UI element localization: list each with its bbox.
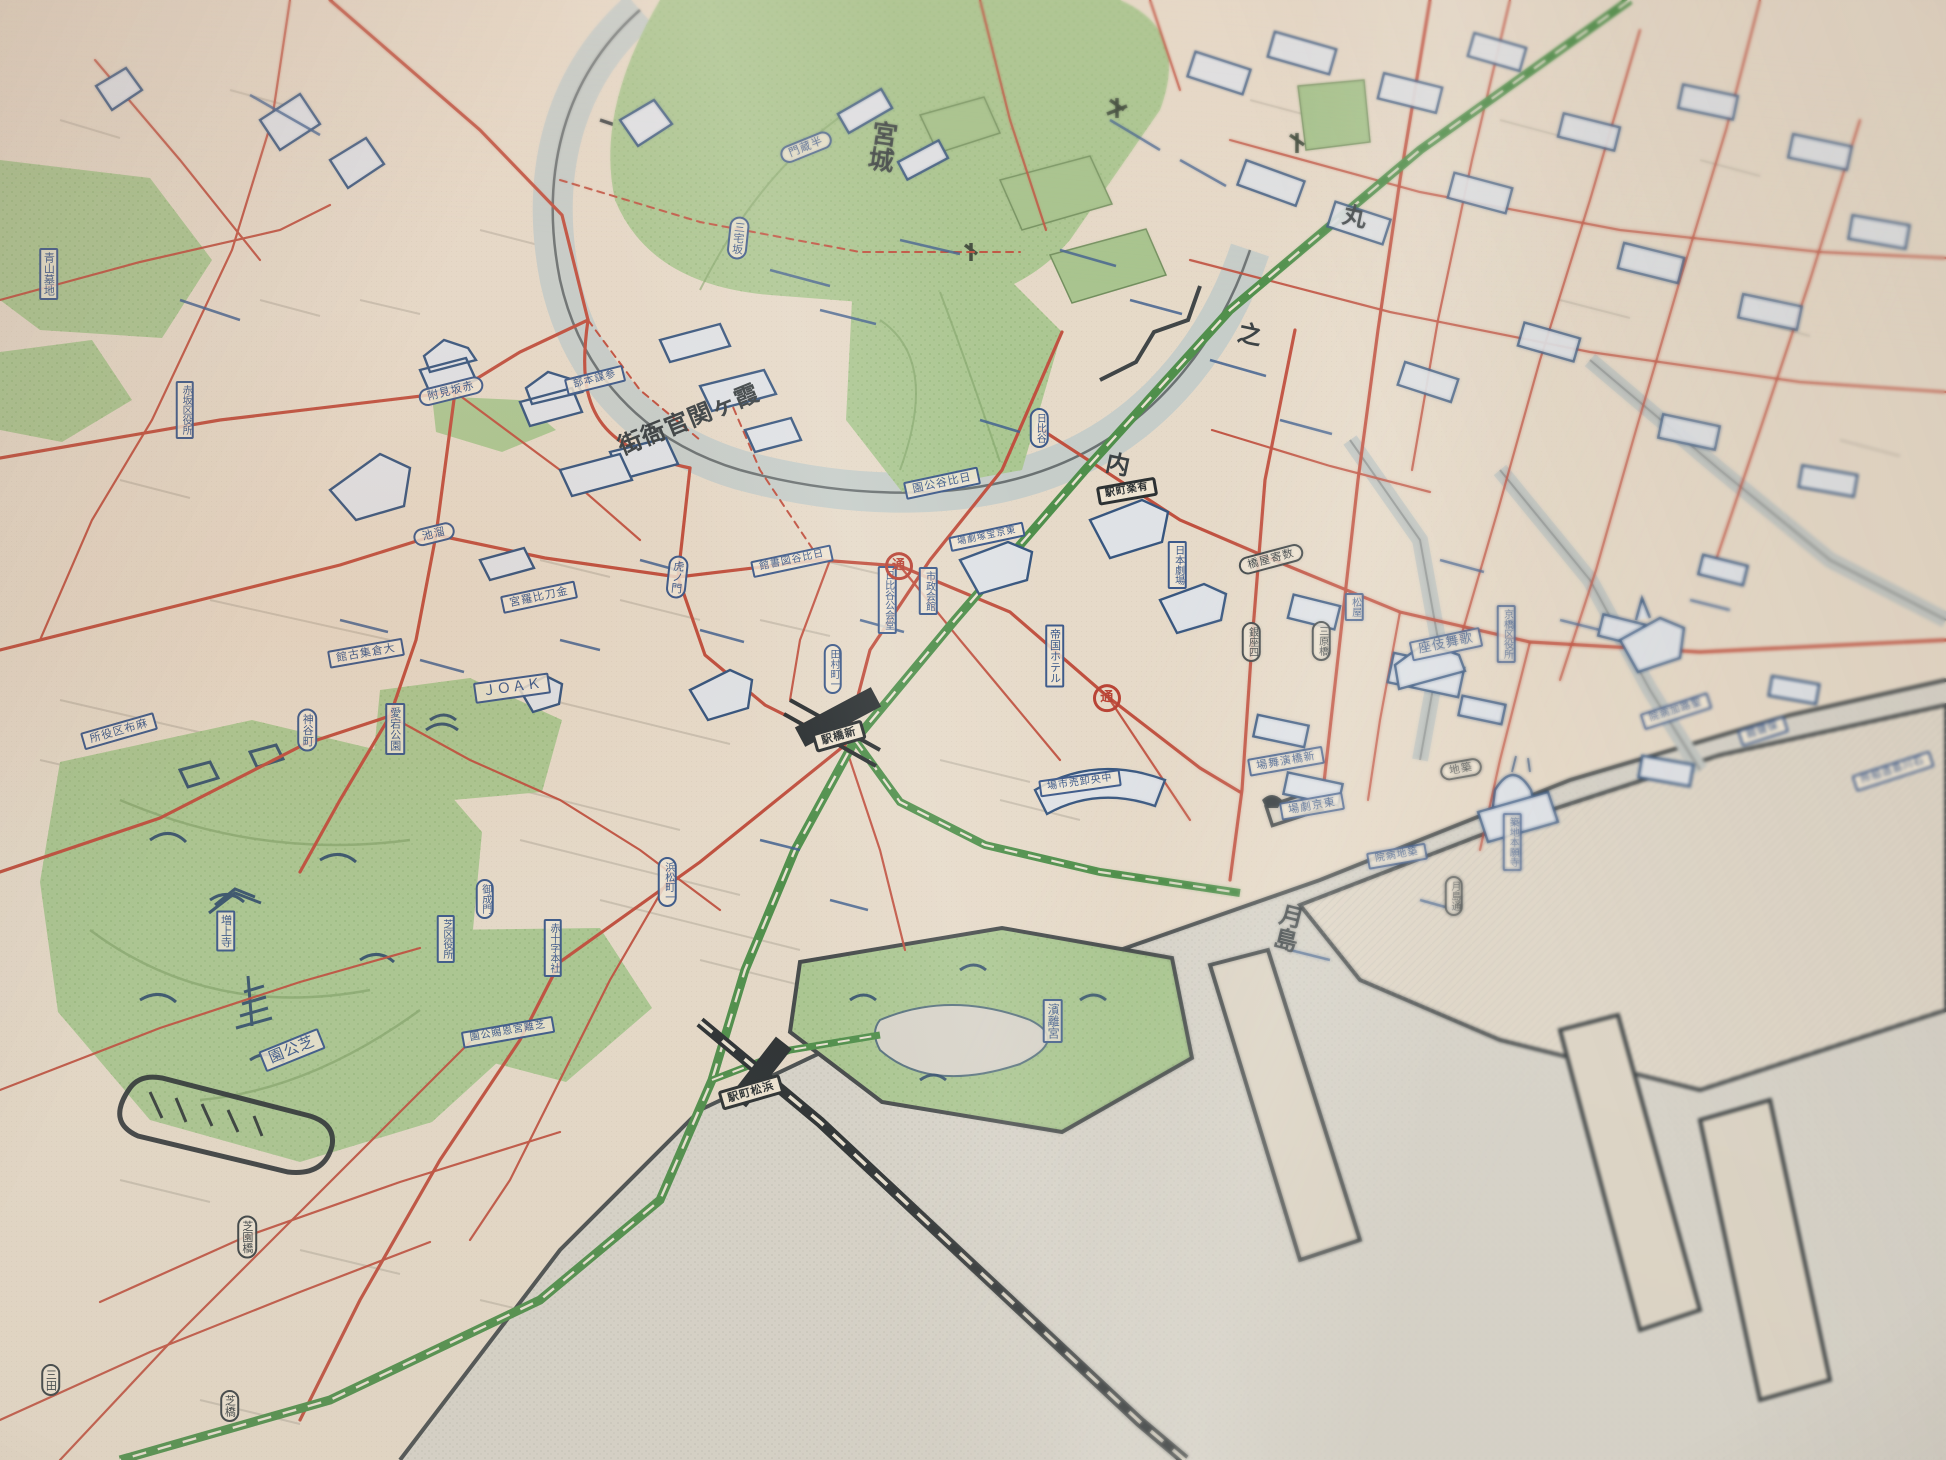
district-no: 之 [1233, 319, 1263, 348]
label-sekijuji-honsha: 赤十字本社 [543, 919, 562, 977]
mark-dori-1: 通 [885, 553, 913, 581]
district-uchi: 内 [1100, 448, 1130, 477]
label-nihon-gekijo: 日本劇場 [1168, 541, 1187, 589]
label-kyobashi-kuyakusho: 京橋区役所 [1497, 605, 1516, 663]
label-shiba-kuyakusho: 芝区役所 [436, 915, 455, 963]
label-shibabashi: 芝橋 [220, 1390, 240, 1422]
label-tsukishima-dori: 月島通 [1444, 876, 1463, 916]
label-ginza-4: 銀座四 [1242, 622, 1261, 662]
label-aoyama-bochi: 青山墓地 [39, 248, 59, 300]
label-matsuya: 松屋 [1345, 593, 1364, 621]
map-artwork [0, 0, 1946, 1460]
label-miharabashi: 三原橋 [1312, 621, 1331, 661]
district-maru: 丸 [1338, 200, 1368, 229]
label-shisei-kaikan: 市政会館 [919, 567, 938, 615]
mark-dori-2: 通 [1093, 684, 1121, 712]
label-honganji: 築地本願寺 [1503, 813, 1522, 871]
label-kamiyacho: 神谷町 [298, 709, 318, 752]
district-kyujo: 宮城 [862, 118, 896, 173]
label-teikoku-hotel: 帝国ホテル [1045, 624, 1065, 687]
label-hamamatsucho-1: 浜松町一 [658, 857, 677, 907]
label-hibiya: 日比谷 [1030, 408, 1049, 448]
label-tamuracho-1: 田村町一 [824, 644, 843, 694]
label-miyakezaka: 三宅坂 [726, 216, 750, 261]
label-mita: 三田 [41, 1364, 61, 1396]
label-shibaenbashi: 芝園橋 [237, 1215, 257, 1258]
label-atago-koen: 愛宕公園 [385, 703, 405, 755]
map-photo: 宮城街衙官関ヶ霞丸之内月島青山墓地赤坂区役所附見坂赤三宅坂門蔵半部本謀参池溜宮羅… [0, 0, 1946, 1460]
label-onarimon: 御成門 [475, 879, 494, 919]
label-akasaka-kuyakusho: 赤坂区役所 [176, 381, 195, 439]
label-hamarikyu: 濱離宮 [1042, 999, 1063, 1043]
label-zojoji: 増上寺 [216, 911, 236, 952]
